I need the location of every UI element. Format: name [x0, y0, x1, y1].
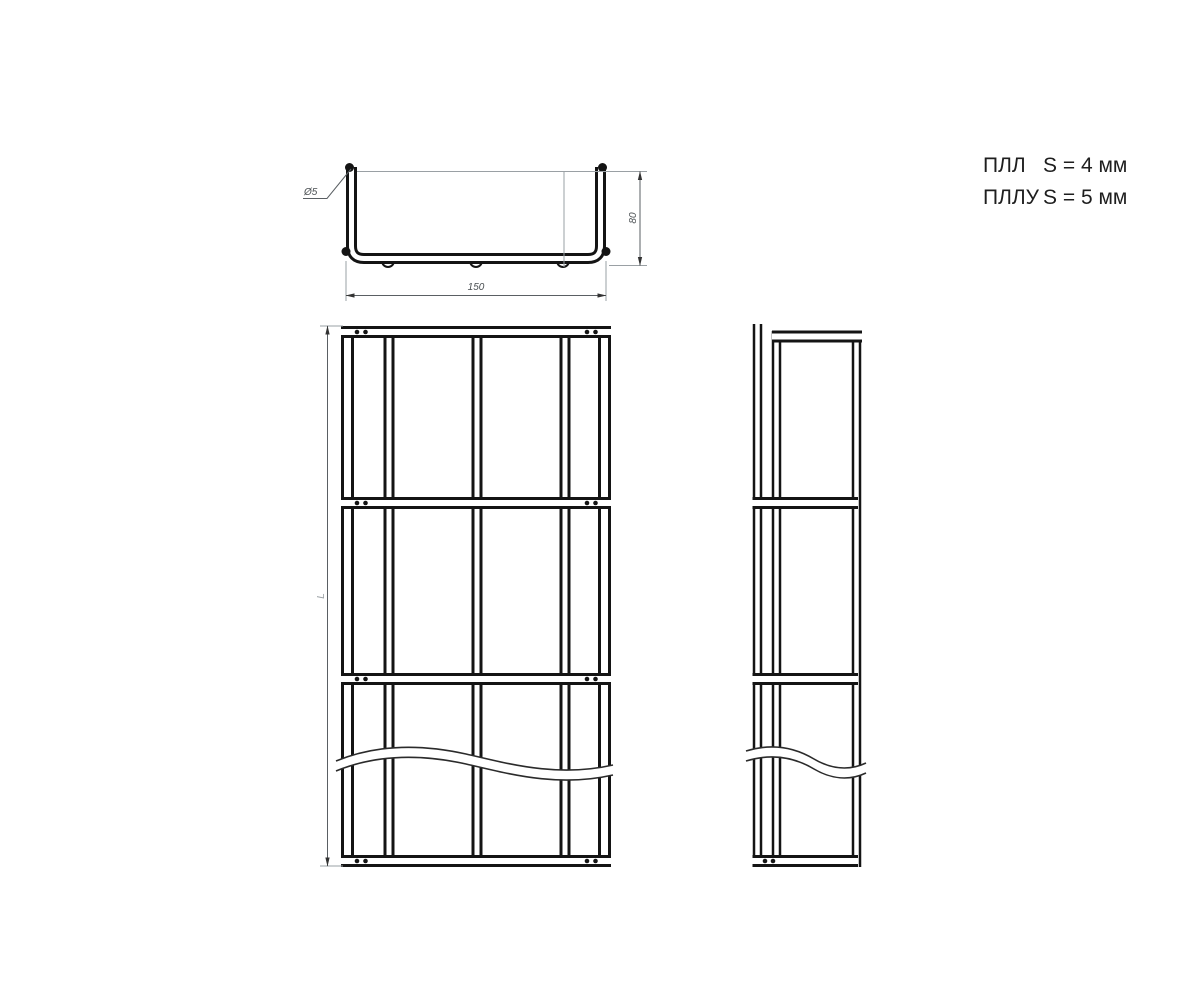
weld-dot: [363, 859, 368, 864]
weld-dot: [355, 501, 360, 506]
section-u-profile: [352, 167, 601, 259]
length-dimension: L: [316, 326, 343, 866]
spec-row: ПЛЛ S = 4 мм: [983, 150, 1127, 182]
height-dimension-label: 80: [628, 212, 639, 224]
weld-dot: [593, 501, 598, 506]
plan-view: L: [316, 326, 613, 867]
weld-dot: [585, 330, 590, 335]
side-view: [746, 324, 866, 867]
weld-dot: [355, 330, 360, 335]
weld-dot: [598, 163, 607, 172]
length-dimension-label: L: [316, 593, 327, 599]
spec-model: ПЛЛ: [983, 150, 1043, 182]
weld-dot: [363, 677, 368, 682]
break-mask: [746, 747, 866, 778]
weld-dot: [355, 859, 360, 864]
weld-dot: [355, 677, 360, 682]
weld-dot: [593, 859, 598, 864]
weld-dot: [585, 859, 590, 864]
weld-dot: [363, 501, 368, 506]
section-u-profile-core: [352, 167, 601, 259]
weld-dot: [602, 247, 611, 256]
width-dimension-label: 150: [468, 282, 485, 293]
weld-dot: [593, 677, 598, 682]
diameter-leader: Ø5: [303, 169, 351, 199]
weld-dot: [585, 501, 590, 506]
drawing-canvas: 150 80 Ø5: [0, 0, 1200, 1000]
spec-value: S = 4 мм: [1043, 150, 1127, 182]
weld-dot: [342, 247, 351, 256]
weld-dot: [593, 330, 598, 335]
height-dimension: 80: [628, 172, 640, 266]
break-line: [746, 747, 866, 778]
weld-dot: [771, 859, 776, 864]
weld-dot: [585, 677, 590, 682]
diameter-label: Ø5: [303, 187, 318, 198]
spec-row: ПЛЛУ S = 5 мм: [983, 182, 1127, 214]
weld-dot: [363, 330, 368, 335]
spec-value: S = 5 мм: [1043, 182, 1127, 214]
spec-model: ПЛЛУ: [983, 182, 1043, 214]
weld-dot: [763, 859, 768, 864]
side-rungs: [753, 337, 863, 862]
spec-note: ПЛЛ S = 4 мм ПЛЛУ S = 5 мм: [983, 150, 1127, 214]
width-dimension: 150: [346, 282, 606, 296]
cross-section-view: 150 80 Ø5: [303, 163, 647, 301]
